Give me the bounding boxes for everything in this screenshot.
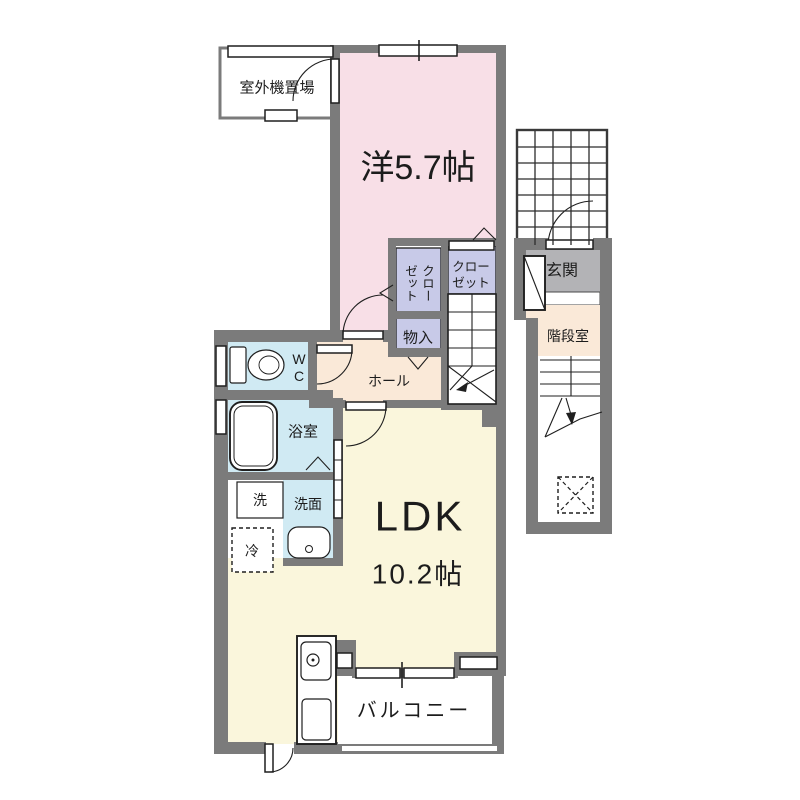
sliding-door-washroom — [334, 440, 342, 518]
label-ldk-size: 10.2帖 — [372, 559, 465, 590]
door-leaf-ldk-exit — [265, 744, 273, 772]
label-western-room: 洋5.7帖 — [360, 149, 475, 187]
label-wc-w: W — [292, 351, 306, 367]
wall-corner-block — [482, 410, 498, 427]
wall-hall-top-stub — [383, 330, 396, 342]
door-leaf-wc — [317, 345, 352, 353]
label-closet-horizontal-line1: クロー — [452, 260, 490, 274]
wall-balcony-right — [492, 670, 504, 754]
label-hall: ホール — [368, 373, 410, 389]
label-balcony: バルコニー — [357, 700, 472, 722]
wall-ldk-top-left — [309, 400, 346, 408]
label-ldk-name: LDK — [375, 493, 466, 540]
label-closet-horizontal-line2: ゼット — [452, 276, 490, 290]
stairs-internal — [448, 294, 496, 404]
label-storage: 物入 — [403, 330, 433, 347]
wall-bath-bottom — [226, 472, 333, 480]
wall-left-outer — [214, 330, 228, 754]
kitchen-faucet-dot — [312, 659, 315, 662]
wall-wc-bottom — [226, 390, 333, 400]
window-outdoor-bottom — [265, 110, 297, 121]
window-wc-left — [216, 346, 226, 386]
window-outdoor-top — [228, 46, 333, 57]
door-leaf-outdoor-unit — [331, 59, 339, 103]
door-leaf-hall-ldk — [346, 402, 386, 410]
floor-plan-page: 室外機置場 洋5.7帖 クロー ゼット クロー ゼット 物入 ホール W C 浴… — [0, 0, 800, 800]
kitchen-sink-icon — [301, 642, 331, 680]
window-western-top — [379, 45, 457, 56]
balcony-rail-inset — [342, 746, 497, 751]
kitchen-cabinet — [302, 699, 331, 740]
label-laundry: 洗 — [253, 492, 267, 508]
label-washroom: 洗面 — [294, 496, 322, 512]
label-closet-vertical-col2: ゼット — [403, 264, 417, 302]
wall-closet-divider — [391, 311, 444, 319]
wall-ldk-top-right — [383, 400, 448, 408]
bathtub-icon — [230, 402, 277, 470]
wall-storage-bottom — [388, 348, 446, 357]
wall-strip-right — [600, 246, 612, 534]
label-bathroom: 浴室 — [288, 424, 318, 441]
wall-washroom-bottom — [283, 558, 343, 566]
window-balcony-left-panel — [356, 668, 400, 678]
floor-plan: 室外機置場 洋5.7帖 クロー ゼット クロー ゼット 物入 ホール W C 浴… — [0, 0, 800, 800]
wall-stairs-left — [441, 242, 448, 408]
wall-strip-left-lower — [526, 336, 538, 534]
label-stairwell: 階段室 — [547, 328, 589, 344]
label-closet-vertical-col1: クロー — [420, 264, 434, 302]
wall-strip-bottom — [526, 522, 612, 534]
closet-horizontal-door-band — [449, 241, 494, 250]
label-entrance: 玄関 — [546, 262, 578, 280]
label-outdoor-unit: 室外機置場 — [239, 80, 314, 97]
label-wc-c: C — [294, 368, 304, 384]
kitchen-side-hatch — [337, 653, 352, 668]
door-leaf-western-arm — [343, 331, 383, 339]
window-bath-left — [216, 400, 226, 434]
window-ldk-right — [460, 657, 497, 669]
toilet-tank-icon — [230, 347, 246, 383]
wall-right — [496, 45, 506, 674]
window-balcony-right-panel — [404, 668, 454, 678]
label-fridge: 冷 — [245, 543, 259, 559]
wall-hall-top — [214, 330, 343, 342]
wall-wc-right — [308, 330, 317, 400]
wall-bottom-left — [214, 742, 266, 754]
washbasin-icon — [288, 527, 330, 558]
wall-strip-notch — [526, 318, 538, 336]
